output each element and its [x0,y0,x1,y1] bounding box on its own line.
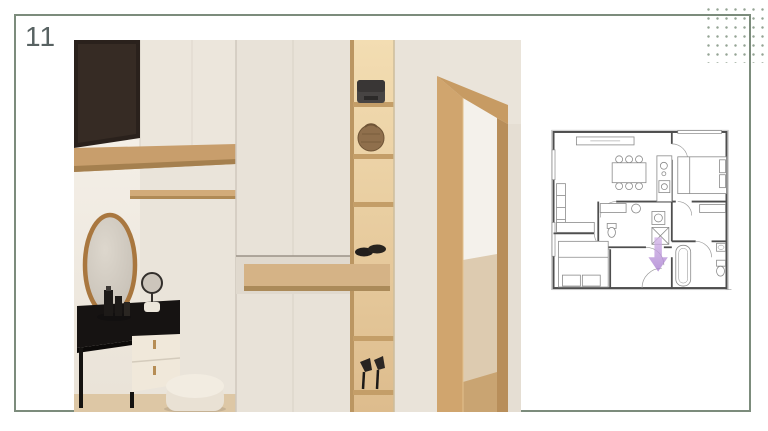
floor-plan-svg [550,128,732,295]
kitchen-counter [657,156,672,202]
furniture [557,137,727,287]
interior-render-svg [74,40,521,412]
handbag [357,80,385,103]
floor-plan-diagram [550,128,732,295]
page-number: 11 [25,22,56,53]
open-shoe-shelves [350,40,394,412]
tv-panel [74,40,140,148]
sofa [557,184,595,233]
bedroom-top-bed [678,157,727,194]
wardrobe-doors [236,40,350,412]
pouf-stool [164,374,226,412]
upper-cabinets [140,40,236,150]
dining-set [612,156,646,190]
interior-render-image [74,40,521,412]
corner-dots-decoration [702,3,768,63]
round-wicker-bag [358,124,384,151]
bedroom-bottom-bed [558,241,608,287]
bathroom2-fixtures [676,205,726,287]
door-frame [437,76,521,412]
right-wardrobe [394,40,440,412]
